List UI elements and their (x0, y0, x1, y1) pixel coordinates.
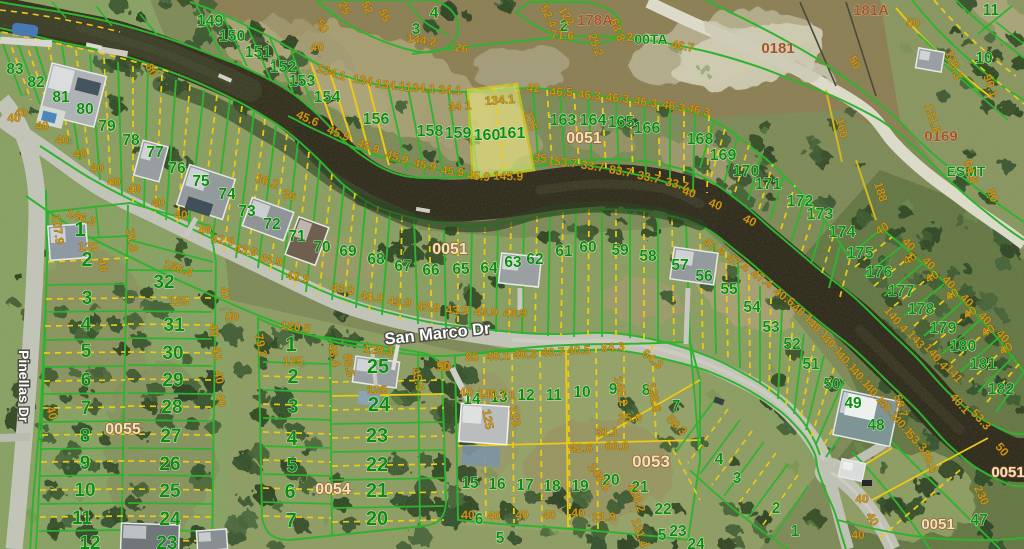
svg-text:23: 23 (156, 533, 177, 549)
svg-text:4: 4 (430, 5, 439, 22)
svg-text:40: 40 (206, 323, 222, 339)
svg-text:71.6: 71.6 (550, 27, 575, 43)
svg-text:50: 50 (823, 376, 840, 393)
svg-text:134.1: 134.1 (484, 92, 515, 108)
svg-text:0051: 0051 (921, 516, 954, 533)
svg-text:42.6: 42.6 (569, 441, 593, 455)
svg-text:154: 154 (314, 89, 341, 106)
svg-text:5: 5 (496, 530, 505, 547)
svg-text:22: 22 (654, 501, 671, 518)
svg-text:7: 7 (285, 510, 296, 532)
svg-text:67: 67 (394, 258, 411, 275)
svg-text:2: 2 (287, 366, 298, 388)
svg-text:11: 11 (983, 2, 1000, 19)
svg-text:60.6: 60.6 (605, 439, 629, 453)
svg-text:43.9: 43.9 (416, 299, 441, 315)
svg-text:3: 3 (287, 396, 298, 418)
svg-text:5: 5 (286, 455, 297, 477)
svg-text:28: 28 (161, 397, 182, 418)
svg-text:174: 174 (829, 224, 856, 241)
svg-text:134.1: 134.1 (405, 80, 436, 96)
svg-text:8: 8 (80, 426, 91, 447)
svg-text:53: 53 (762, 319, 780, 336)
svg-text:3: 3 (733, 470, 742, 487)
svg-text:12: 12 (517, 387, 534, 404)
svg-text:0051: 0051 (566, 130, 602, 147)
svg-text:1: 1 (791, 523, 800, 540)
svg-text:181A: 181A (853, 2, 889, 19)
svg-text:43.9: 43.9 (387, 294, 412, 310)
svg-text:11: 11 (546, 387, 563, 404)
svg-text:50: 50 (225, 310, 239, 324)
svg-text:55: 55 (720, 281, 738, 298)
svg-text:0181: 0181 (761, 40, 794, 57)
svg-text:5: 5 (81, 341, 92, 362)
svg-text:40: 40 (73, 147, 87, 161)
svg-text:58: 58 (639, 248, 657, 265)
svg-text:78: 78 (122, 132, 140, 149)
svg-text:18: 18 (543, 478, 561, 495)
svg-text:40.1: 40.1 (486, 349, 510, 364)
svg-text:46.3: 46.3 (605, 90, 630, 106)
svg-text:40: 40 (7, 111, 21, 125)
svg-text:178: 178 (908, 301, 935, 318)
svg-text:158: 158 (417, 123, 444, 140)
svg-text:40: 40 (515, 508, 529, 522)
svg-text:40: 40 (487, 509, 501, 523)
svg-text:73: 73 (238, 203, 256, 220)
svg-text:10: 10 (74, 480, 95, 501)
svg-text:171: 171 (755, 176, 782, 193)
svg-text:26: 26 (159, 454, 180, 475)
svg-text:40: 40 (855, 492, 869, 506)
svg-text:20: 20 (366, 508, 388, 530)
svg-text:21: 21 (366, 480, 388, 502)
svg-text:40: 40 (174, 208, 188, 222)
svg-text:31: 31 (163, 315, 185, 336)
svg-text:40.3: 40.3 (513, 347, 537, 362)
svg-text:23: 23 (669, 523, 687, 540)
svg-text:43.9: 43.9 (474, 305, 498, 319)
svg-text:160: 160 (474, 127, 501, 144)
svg-text:145.9: 145.9 (493, 168, 524, 183)
svg-text:26: 26 (454, 40, 470, 56)
svg-text:166: 166 (634, 120, 661, 137)
svg-text:46.5: 46.5 (549, 85, 573, 100)
svg-text:24: 24 (368, 394, 391, 416)
svg-text:7: 7 (81, 398, 92, 419)
svg-text:5: 5 (658, 527, 667, 544)
svg-text:68: 68 (367, 251, 385, 268)
svg-text:6: 6 (81, 370, 92, 391)
svg-text:64: 64 (480, 260, 498, 277)
svg-text:4: 4 (286, 428, 298, 450)
svg-text:40.7: 40.7 (541, 345, 565, 360)
svg-text:12: 12 (79, 533, 100, 549)
svg-text:00TA: 00TA (634, 31, 667, 47)
svg-text:60: 60 (579, 239, 596, 256)
svg-text:177: 177 (888, 283, 915, 300)
svg-text:6: 6 (475, 511, 484, 528)
svg-text:80: 80 (76, 101, 93, 118)
svg-text:16: 16 (488, 476, 506, 493)
svg-text:31.1: 31.1 (595, 425, 619, 439)
svg-text:181: 181 (970, 356, 997, 373)
svg-text:45.9: 45.9 (466, 168, 491, 184)
svg-text:40: 40 (213, 393, 229, 409)
svg-text:49: 49 (844, 395, 862, 412)
svg-text:179: 179 (930, 320, 957, 337)
svg-text:40: 40 (461, 508, 475, 522)
svg-text:40: 40 (55, 133, 69, 147)
svg-text:180: 180 (950, 338, 977, 355)
svg-text:150: 150 (219, 28, 246, 45)
svg-text:27: 27 (160, 426, 181, 447)
svg-text:24: 24 (159, 509, 181, 530)
svg-text:47: 47 (217, 286, 233, 302)
svg-text:56: 56 (695, 268, 713, 285)
svg-text:63: 63 (504, 254, 522, 271)
svg-text:40: 40 (151, 196, 165, 210)
svg-text:83: 83 (6, 61, 24, 78)
svg-text:40: 40 (90, 161, 104, 175)
svg-text:40: 40 (459, 385, 473, 399)
svg-text:24: 24 (687, 536, 705, 549)
svg-text:2: 2 (772, 500, 781, 517)
svg-text:40: 40 (209, 346, 225, 362)
svg-text:0054: 0054 (315, 481, 351, 498)
svg-text:57: 57 (671, 257, 688, 274)
svg-text:40: 40 (127, 182, 141, 196)
svg-text:79: 79 (98, 118, 116, 135)
svg-text:85: 85 (465, 350, 479, 364)
svg-text:30: 30 (162, 343, 183, 364)
svg-text:40: 40 (211, 370, 227, 386)
svg-text:0055: 0055 (105, 421, 141, 438)
svg-text:0051: 0051 (432, 241, 468, 258)
svg-text:9: 9 (80, 453, 91, 474)
svg-text:52: 52 (783, 336, 800, 353)
svg-text:43.9: 43.9 (503, 306, 527, 320)
svg-text:153: 153 (289, 73, 316, 90)
svg-text:47: 47 (970, 512, 987, 529)
svg-text:40: 40 (851, 528, 865, 542)
svg-text:3: 3 (82, 288, 93, 309)
svg-text:74: 74 (218, 186, 236, 203)
svg-text:34 1: 34 1 (448, 98, 473, 114)
svg-text:70: 70 (313, 239, 330, 256)
svg-text:40: 40 (107, 175, 121, 189)
svg-text:59: 59 (611, 242, 629, 259)
svg-text:61: 61 (555, 243, 573, 260)
svg-text:65: 65 (452, 261, 470, 278)
svg-text:11: 11 (72, 508, 93, 529)
svg-text:43.9: 43.9 (445, 303, 469, 318)
svg-text:40: 40 (35, 119, 49, 133)
svg-text:46.3: 46.3 (577, 87, 602, 103)
svg-text:164: 164 (580, 112, 607, 129)
svg-text:40: 40 (571, 506, 585, 520)
svg-text:48: 48 (867, 417, 885, 434)
svg-text:169: 169 (710, 147, 737, 164)
svg-text:182: 182 (988, 381, 1015, 398)
svg-text:15: 15 (461, 475, 479, 492)
svg-text:2: 2 (627, 30, 634, 44)
svg-text:42: 42 (526, 81, 540, 95)
svg-text:4: 4 (81, 314, 92, 335)
svg-text:51: 51 (802, 356, 820, 373)
svg-text:161: 161 (499, 125, 526, 142)
svg-text:1: 1 (509, 388, 516, 402)
svg-text:29: 29 (162, 370, 183, 391)
svg-text:25.8: 25.8 (618, 411, 642, 425)
svg-text:76: 76 (168, 160, 186, 177)
svg-text:168: 168 (687, 131, 714, 148)
svg-text:165: 165 (608, 114, 635, 131)
svg-text:75: 75 (192, 173, 210, 190)
svg-text:25: 25 (159, 481, 181, 502)
svg-text:10: 10 (975, 50, 992, 67)
svg-text:62: 62 (526, 251, 543, 268)
svg-text:140.7: 140.7 (477, 387, 507, 401)
svg-text:6: 6 (284, 481, 295, 503)
svg-text:125: 125 (283, 354, 303, 368)
svg-text:32: 32 (153, 272, 174, 293)
svg-text:40.5: 40.5 (567, 343, 591, 358)
svg-text:22: 22 (366, 454, 388, 476)
svg-text:163: 163 (550, 112, 577, 129)
svg-text:125: 125 (367, 383, 387, 397)
svg-text:151: 151 (245, 44, 272, 61)
svg-text:40: 40 (95, 258, 111, 273)
svg-text:23: 23 (366, 425, 388, 447)
svg-text:35: 35 (533, 151, 548, 166)
svg-text:82: 82 (27, 74, 44, 91)
svg-text:0051: 0051 (991, 464, 1024, 481)
svg-text:156: 156 (363, 111, 390, 128)
svg-text:71: 71 (288, 228, 306, 245)
svg-text:69: 69 (339, 243, 357, 260)
svg-text:17: 17 (516, 477, 533, 494)
svg-text:1: 1 (285, 334, 296, 356)
svg-text:10: 10 (573, 384, 590, 401)
svg-text:21.9: 21.9 (592, 510, 616, 524)
svg-text:125: 125 (78, 240, 98, 254)
svg-text:81: 81 (52, 89, 70, 106)
svg-text:64.3: 64.3 (601, 339, 626, 355)
svg-text:175: 175 (847, 245, 874, 262)
svg-text:125: 125 (169, 294, 189, 308)
svg-text:40: 40 (198, 223, 212, 237)
svg-text:173: 173 (807, 206, 834, 223)
svg-text:0053: 0053 (632, 452, 670, 471)
svg-text:72: 72 (263, 216, 280, 233)
svg-text:50: 50 (437, 360, 451, 374)
svg-text:4: 4 (715, 451, 724, 468)
svg-text:176: 176 (866, 264, 893, 281)
svg-text:19: 19 (571, 478, 589, 495)
svg-text:40: 40 (542, 508, 556, 522)
svg-text:54: 54 (743, 299, 761, 316)
svg-text:25: 25 (367, 356, 389, 378)
svg-text:159: 159 (445, 125, 472, 142)
svg-text:77: 77 (146, 144, 163, 161)
svg-text:66: 66 (422, 262, 440, 279)
svg-text:40: 40 (310, 40, 324, 54)
svg-text:Pinellas Dr: Pinellas Dr (16, 350, 32, 423)
svg-text:50: 50 (906, 16, 920, 30)
svg-text:34.1: 34.1 (438, 83, 462, 98)
